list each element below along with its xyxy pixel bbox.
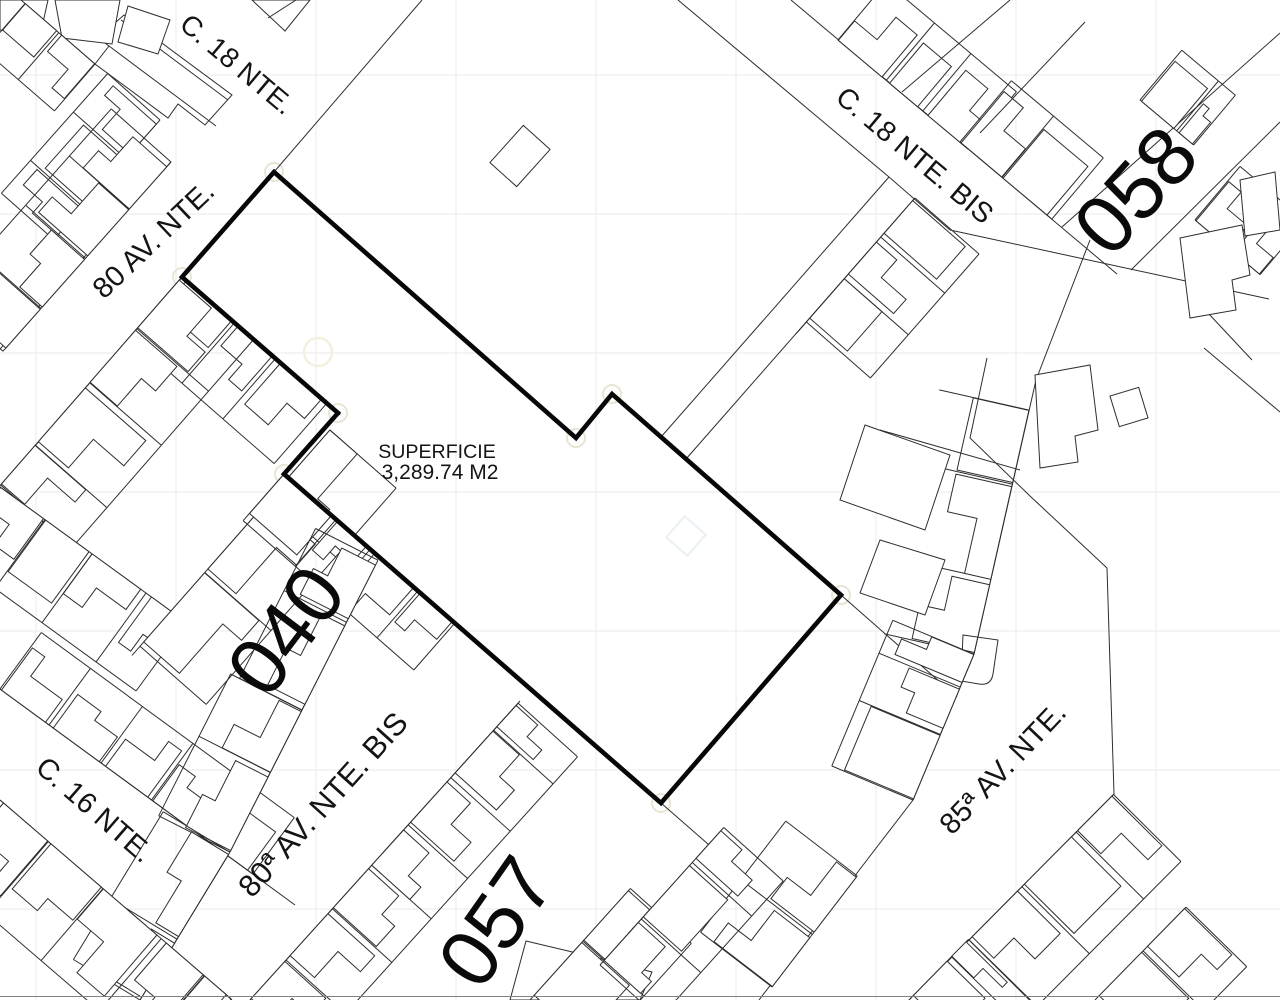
svg-text:3,289.74 M2: 3,289.74 M2: [382, 461, 499, 484]
svg-text:SUPERFICIE: SUPERFICIE: [378, 441, 496, 463]
